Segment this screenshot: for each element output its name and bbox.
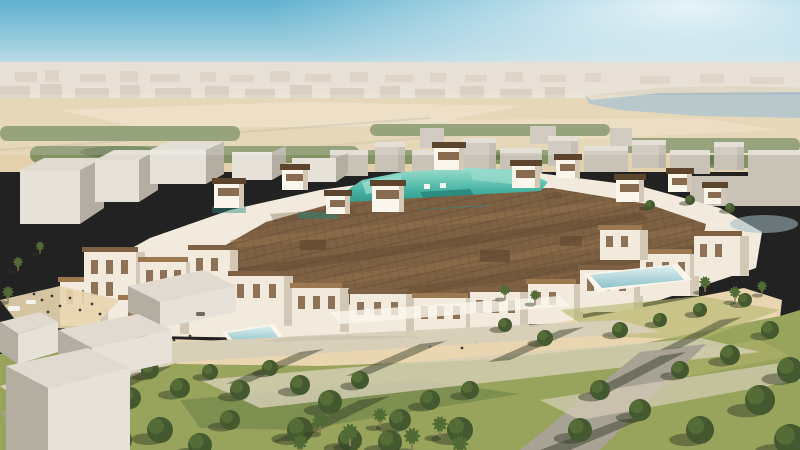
render-viewport: Aerial rendering of a desert low-rise di… [0,0,800,450]
atmospheric-haze [0,95,800,155]
bowl-detail [424,184,430,189]
pond [730,215,798,233]
bowl-detail [440,183,446,188]
context-box [95,150,158,202]
massing-box [6,348,130,450]
architectural-render: Aerial rendering of a desert low-rise di… [0,0,800,450]
context-box [20,158,104,224]
